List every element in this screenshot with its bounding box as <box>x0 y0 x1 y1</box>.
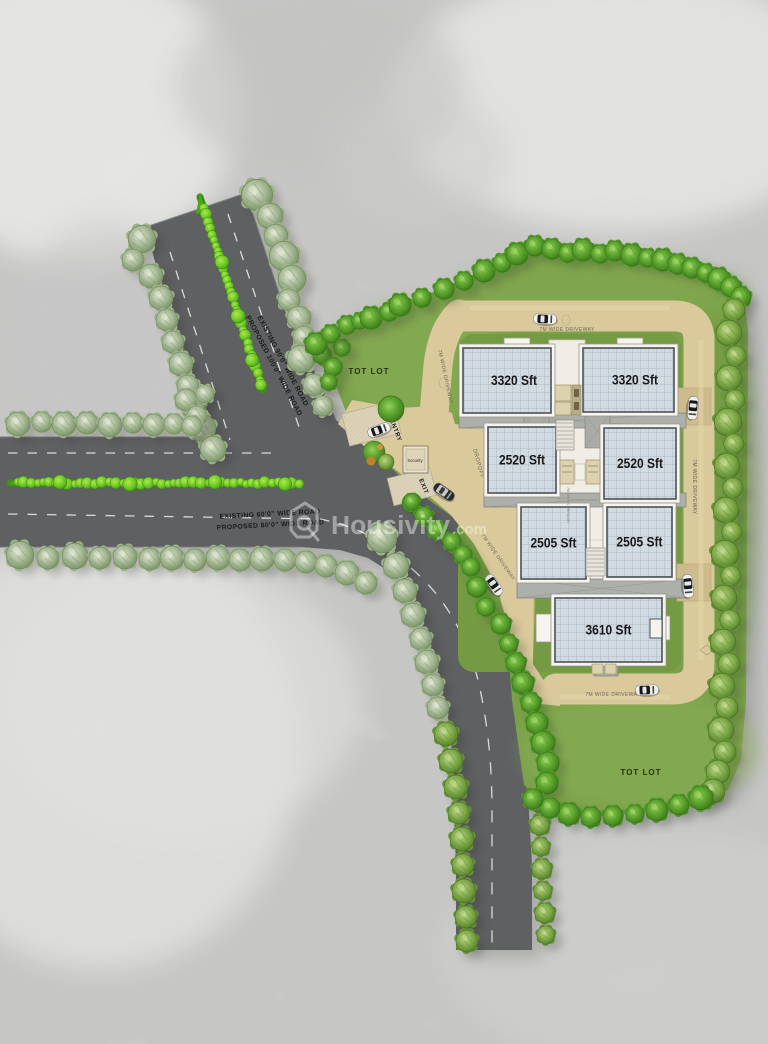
svg-text:3320 Sft: 3320 Sft <box>491 373 537 388</box>
svg-text:Security: Security <box>407 458 423 463</box>
svg-text:Housivity: Housivity <box>331 512 451 540</box>
svg-text:.com: .com <box>452 521 487 538</box>
svg-text:3610 Sft: 3610 Sft <box>586 623 632 638</box>
svg-text:2505 Sft: 2505 Sft <box>531 536 577 551</box>
svg-text:TOT LOT: TOT LOT <box>620 768 661 777</box>
svg-text:7M WIDE CORRIDOR: 7M WIDE CORRIDOR <box>566 487 570 523</box>
svg-text:2520 Sft: 2520 Sft <box>499 453 545 468</box>
svg-text:2505 Sft: 2505 Sft <box>617 535 663 550</box>
svg-text:TOT LOT: TOT LOT <box>348 367 389 376</box>
svg-text:3320 Sft: 3320 Sft <box>612 373 658 388</box>
svg-text:7M WIDE DRIVEWAY: 7M WIDE DRIVEWAY <box>691 459 697 515</box>
svg-text:2520 Sft: 2520 Sft <box>617 456 663 471</box>
svg-text:7M WIDE DRIVEWAY: 7M WIDE DRIVEWAY <box>539 327 595 333</box>
svg-text:7M WIDE DRIVEWAY: 7M WIDE DRIVEWAY <box>585 692 641 698</box>
